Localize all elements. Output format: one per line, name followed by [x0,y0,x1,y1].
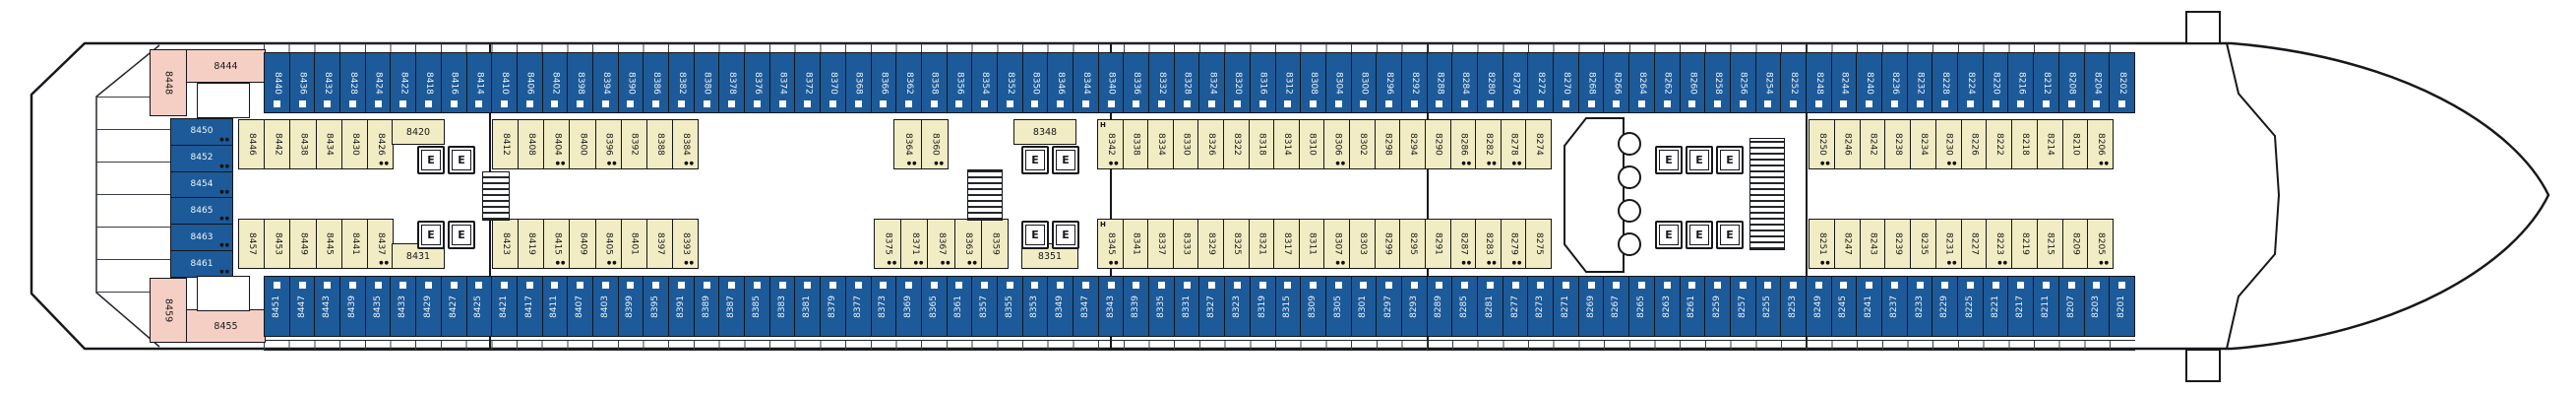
cabin-8308[interactable]: 8308 [1300,52,1326,113]
stern-cabin-column: 8450●●8452●●8454●●8465●●8463●●8461●● [170,118,233,278]
cabin-8293[interactable]: 8293 [1401,276,1428,337]
cabin-8216[interactable]: 8216 [2007,52,2034,113]
cabin-suite-aft-top-vertical[interactable]: 8448 [150,49,187,116]
cabin-8385[interactable]: 8385 [744,276,770,337]
inner-upper-bow-block: 8250●●82468242823882348230●●822682228218… [1809,119,2114,169]
cabin-8234[interactable]: 8234 [1910,119,1936,169]
elevator-icon: E [1686,221,1713,249]
cabin-8298[interactable]: 8298 [1375,119,1401,169]
cabin-8425[interactable]: 8425 [466,276,493,337]
cabin-8247[interactable]: 8247 [1834,219,1861,269]
cabin-8359[interactable]: 8359 [981,219,1009,269]
cabin-8339[interactable]: 8339 [1123,276,1149,337]
cabin-8268[interactable]: 8268 [1578,52,1605,113]
inner-lower-bow-block: 8251●●82478243823982358231●●82278223●●82… [1809,219,2114,269]
cabin-8291[interactable]: 8291 [1425,219,1451,269]
cabin-8202[interactable]: 8202 [2109,52,2135,113]
elevator-icon: E [1052,221,1079,249]
cabin-8227[interactable]: 8227 [1961,219,1988,269]
berth-dots-icon: ●● [1461,261,1472,266]
cabin-8386[interactable]: 8386 [643,52,669,113]
cabin-8220[interactable]: 8220 [1983,52,2009,113]
cabin-8278[interactable]: 8278●● [1501,119,1527,169]
cabin-8218[interactable]: 8218 [2011,119,2038,169]
cabin-8376[interactable]: 8376 [744,52,770,113]
cabin-8319[interactable]: 8319 [1250,276,1276,337]
cabin-8304[interactable]: 8304 [1325,52,1352,113]
cabin-8324[interactable]: 8324 [1198,52,1225,113]
cabin-8296[interactable]: 8296 [1376,52,1402,113]
cabin-8397[interactable]: 8397 [646,219,673,269]
cabin-8204[interactable]: 8204 [2084,52,2111,113]
cabin-8345[interactable]: 8345●●H [1097,219,1124,269]
berth-dots-icon: ●● [2099,261,2110,266]
cabin-8398[interactable]: 8398 [567,52,593,113]
cabin-8365[interactable]: 8365 [921,276,948,337]
cabin-suite-aft-top-wide[interactable]: 8444 [186,49,266,83]
cabin-8250[interactable]: 8250●● [1809,119,1835,169]
cabin-8253[interactable]: 8253 [1780,276,1807,337]
cabin-8294[interactable]: 8294 [1399,119,1426,169]
cabin-8338[interactable]: 8338 [1123,119,1149,169]
cabin-8287[interactable]: 8287●● [1450,219,1477,269]
cabin-8233[interactable]: 8233 [1907,276,1933,337]
berth-dots-icon: ●● [1487,261,1498,266]
cabin-8344[interactable]: 8344 [1073,52,1099,113]
cabin-8357[interactable]: 8357 [971,276,998,337]
cabin-8274[interactable]: 8274 [1525,119,1552,169]
cabin-8311[interactable]: 8311 [1299,219,1325,269]
berth-dots-icon: ●● [1335,162,1346,166]
cabin-8303[interactable]: 8303 [1349,219,1376,269]
cabin-8461[interactable]: 8461●● [170,250,233,278]
cabin-8314[interactable]: 8314 [1273,119,1300,169]
cabin-8396[interactable]: 8396●● [595,119,622,169]
cabin-8329[interactable]: 8329 [1197,219,1224,269]
cabin-8393[interactable]: 8393●● [672,219,699,269]
berth-dots-icon: ●● [379,162,390,166]
cabin-8419[interactable]: 8419 [518,219,544,269]
cabin-8355[interactable]: 8355 [997,276,1023,337]
berth-dots-icon: ●● [1512,261,1523,266]
cabin-8246[interactable]: 8246 [1834,119,1861,169]
cabin-8421[interactable]: 8421 [491,276,518,337]
cabin-8299[interactable]: 8299 [1375,219,1401,269]
cabin-8368[interactable]: 8368 [845,52,872,113]
cabin-8380[interactable]: 8380 [694,52,720,113]
cabin-8378[interactable]: 8378 [718,52,745,113]
inner-lower-mid-block: 8375●●8371●●8367●●8363●●8359 [874,219,1009,269]
elevator-icon: E [417,146,445,174]
cabin-8254[interactable]: 8254 [1755,52,1782,113]
berth-dots-icon: ●● [684,261,695,266]
cabin-8350[interactable]: 8350 [1022,52,1049,113]
cabin-8439[interactable]: 8439 [339,276,366,337]
berth-dots-icon: ●● [219,190,230,195]
cabin-8275[interactable]: 8275 [1525,219,1552,269]
cabin-8240[interactable]: 8240 [1856,52,1882,113]
cabin-8337[interactable]: 8337 [1147,219,1174,269]
cabin-8257[interactable]: 8257 [1730,276,1756,337]
cabin-8248[interactable]: 8248 [1806,52,1832,113]
cabin-8276[interactable]: 8276 [1503,52,1529,113]
cabin-8416[interactable]: 8416 [441,52,467,113]
cabin-8333[interactable]: 8333 [1173,219,1199,269]
cabin-8211[interactable]: 8211 [2033,276,2059,337]
berth-dots-icon: ●● [2099,162,2110,166]
cabin-8362[interactable]: 8362 [895,52,922,113]
cabin-8292[interactable]: 8292 [1401,52,1428,113]
cabin-8441[interactable]: 8441 [341,219,368,269]
cabin-8437[interactable]: 8437●● [367,219,394,269]
cabin-8256[interactable]: 8256 [1730,52,1756,113]
cabin-8320[interactable]: 8320 [1224,52,1251,113]
elevator-icon: E [1021,221,1049,249]
berth-dots-icon: ●● [1820,162,1831,166]
cabin-8228[interactable]: 8228 [1932,52,1958,113]
cabin-8364[interactable]: 8364●● [893,119,922,169]
cabin-8389[interactable]: 8389 [694,276,720,337]
cabin-8307[interactable]: 8307●● [1323,219,1350,269]
cabin-8326[interactable]: 8326 [1197,119,1224,169]
cabin-8354[interactable]: 8354 [971,52,998,113]
inner-upper-mid-pair: 8364●●8360●● [893,119,949,169]
cabin-8312[interactable]: 8312 [1275,52,1302,113]
cabin-8452[interactable]: 8452●● [170,145,233,172]
cabin-8426[interactable]: 8426●● [367,119,394,169]
cabin-8400[interactable]: 8400 [569,119,595,169]
cabin-8317[interactable]: 8317 [1273,219,1300,269]
cabin-8325[interactable]: 8325 [1223,219,1250,269]
berth-dots-icon: ●● [379,261,390,266]
cabin-8206[interactable]: 8206●● [2087,119,2114,169]
cabin-8395[interactable]: 8395 [643,276,669,337]
cabin-8300[interactable]: 8300 [1351,52,1378,113]
cabin-8322[interactable]: 8322 [1223,119,1250,169]
cabin-8423[interactable]: 8423 [492,219,519,269]
cabin-8391[interactable]: 8391 [668,276,695,337]
cabin-8249[interactable]: 8249 [1806,276,1832,337]
stairs-icon [967,169,1003,221]
cabin-8374[interactable]: 8374 [769,52,796,113]
cabin-8285[interactable]: 8285 [1451,276,1478,337]
cabin-8277[interactable]: 8277 [1503,276,1529,337]
berth-dots-icon: ●● [556,261,567,266]
bow-mooring-tab-bottom [2186,350,2220,381]
cabin-8457[interactable]: 8457 [238,219,265,269]
elevator-icon: E [1052,146,1079,174]
cabin-8221[interactable]: 8221 [1983,276,2009,337]
cabin-8427[interactable]: 8427 [441,276,467,337]
cabin-8465[interactable]: 8465●● [170,197,233,225]
cabin-8224[interactable]: 8224 [1957,52,1984,113]
cabin-8346[interactable]: 8346 [1047,52,1073,113]
berth-dots-icon: ●● [1487,162,1498,166]
cabin-8279[interactable]: 8279●● [1501,219,1527,269]
cabin-8323[interactable]: 8323 [1224,276,1251,337]
cabin-8330[interactable]: 8330 [1173,119,1199,169]
cabin-8282[interactable]: 8282●● [1475,119,1502,169]
elevator-bank-forward-lower: E E E [1655,221,1744,249]
cabin-8225[interactable]: 8225 [1957,276,1984,337]
cabin-8205[interactable]: 8205●● [2087,219,2114,269]
cabin-8367[interactable]: 8367●● [927,219,954,269]
cabin-8270[interactable]: 8270 [1553,52,1579,113]
cabin-8334[interactable]: 8334 [1147,119,1174,169]
cabin-8264[interactable]: 8264 [1628,52,1655,113]
cabin-8263[interactable]: 8263 [1654,276,1681,337]
accessible-icon: H [1100,222,1106,229]
cabin-8381[interactable]: 8381 [794,276,821,337]
cabin-8401[interactable]: 8401 [621,219,647,269]
cabin-8352[interactable]: 8352 [997,52,1023,113]
elevator-icon: E [1655,221,1683,249]
cabin-8280[interactable]: 8280 [1477,52,1503,113]
cabin-8388[interactable]: 8388 [646,119,673,169]
berth-dots-icon: ●● [887,261,897,266]
berth-dots-icon: ●● [607,162,618,166]
cabin-8283[interactable]: 8283●● [1475,219,1502,269]
cabin-8442[interactable]: 8442 [264,119,290,169]
cabin-8399[interactable]: 8399 [618,276,644,337]
berth-dots-icon: ●● [219,270,230,275]
cabin-8440[interactable]: 8440 [264,52,290,113]
cabin-8321[interactable]: 8321 [1249,219,1275,269]
cabin-8251[interactable]: 8251●● [1809,219,1835,269]
cabin-8305[interactable]: 8305 [1325,276,1352,337]
cabin-8301[interactable]: 8301 [1351,276,1378,337]
cabin-8245[interactable]: 8245 [1831,276,1858,337]
berth-dots-icon: ●● [1461,162,1472,166]
elevator-icon: E [448,146,475,174]
cabin-8335[interactable]: 8335 [1148,276,1175,337]
cabin-8447[interactable]: 8447 [289,276,316,337]
cabin-8215[interactable]: 8215 [2037,219,2063,269]
cabin-8429[interactable]: 8429 [415,276,442,337]
cabin-8377[interactable]: 8377 [845,276,872,337]
cabin-8288[interactable]: 8288 [1427,52,1453,113]
cabin-8349[interactable]: 8349 [1047,276,1073,337]
cabin-8295[interactable]: 8295 [1399,219,1426,269]
cabin-8237[interactable]: 8237 [1881,276,1908,337]
cabin-8358[interactable]: 8358 [921,52,948,113]
cabin-8450[interactable]: 8450●● [170,118,233,146]
cabin-8343[interactable]: 8343 [1098,276,1125,337]
cabin-8424[interactable]: 8424 [365,52,392,113]
cabin-8212[interactable]: 8212 [2033,52,2059,113]
cabin-8390[interactable]: 8390 [618,52,644,113]
service-room-aft-top [197,83,250,118]
cabin-8222[interactable]: 8222 [1986,119,2012,169]
cabin-8332[interactable]: 8332 [1148,52,1175,113]
cabin-8433[interactable]: 8433 [390,276,416,337]
cabin-8411[interactable]: 8411 [542,276,569,337]
cabin-8261[interactable]: 8261 [1680,276,1706,337]
cabin-8201[interactable]: 8201 [2109,276,2135,337]
cabin-8405[interactable]: 8405●● [595,219,622,269]
elevator-bank-aft-lower: E E [417,221,475,249]
cabin-8207[interactable]: 8207 [2058,276,2085,337]
cabin-8410[interactable]: 8410 [491,52,518,113]
cabin-8375[interactable]: 8375●● [874,219,901,269]
cabin-8417[interactable]: 8417 [517,276,543,337]
cabin-8371[interactable]: 8371●● [900,219,928,269]
cabin-8403[interactable]: 8403 [592,276,619,337]
cabin-8306[interactable]: 8306●● [1323,119,1350,169]
cabin-8392[interactable]: 8392 [621,119,647,169]
cabin-8230[interactable]: 8230●● [1935,119,1962,169]
cabin-8271[interactable]: 8271 [1553,276,1579,337]
cabin-8244[interactable]: 8244 [1831,52,1858,113]
cabin-8415[interactable]: 8415●● [543,219,570,269]
cabin-8430[interactable]: 8430 [341,119,368,169]
berth-dots-icon: ●● [1947,261,1958,266]
cabin-8286[interactable]: 8286●● [1450,119,1477,169]
cabin-8445[interactable]: 8445 [316,219,342,269]
deck-plan: 8448 8444 8459 8455 8450●●8452●●8454●●84… [0,0,2576,394]
berth-dots-icon: ●● [607,261,618,266]
cabin-8432[interactable]: 8432 [314,52,340,113]
cabin-8210[interactable]: 8210 [2062,119,2089,169]
cabin-8223[interactable]: 8223●● [1986,219,2012,269]
cabin-8297[interactable]: 8297 [1376,276,1402,337]
cabin-8449[interactable]: 8449 [289,219,316,269]
cabin-8406[interactable]: 8406 [517,52,543,113]
cabin-8255[interactable]: 8255 [1755,276,1782,337]
cabin-8373[interactable]: 8373 [871,276,897,337]
elevator-icon: E [417,221,445,249]
cabin-8384[interactable]: 8384●● [672,119,699,169]
cabin-8408[interactable]: 8408 [518,119,544,169]
cabin-8232[interactable]: 8232 [1907,52,1933,113]
cabin-8209[interactable]: 8209 [2062,219,2089,269]
cabin-8353[interactable]: 8353 [1022,276,1049,337]
berth-dots-icon: ●● [219,243,230,248]
cabin-8434[interactable]: 8434 [316,119,342,169]
berth-dots-icon: ●● [1947,162,1958,166]
cabin-8229[interactable]: 8229 [1932,276,1958,337]
cabin-8372[interactable]: 8372 [794,52,821,113]
elevator-bank-forward-upper: E E E [1655,146,1744,174]
cabin-8387[interactable]: 8387 [718,276,745,337]
cabin-suite-aft-bottom-wide[interactable]: 8455 [186,309,266,343]
cabin-8336[interactable]: 8336 [1123,52,1149,113]
cabin-8370[interactable]: 8370 [820,52,846,113]
berth-dots-icon: ●● [556,162,567,166]
cabin-8402[interactable]: 8402 [542,52,569,113]
cabin-8238[interactable]: 8238 [1884,119,1911,169]
cabin-8394[interactable]: 8394 [592,52,619,113]
cabin-8366[interactable]: 8366 [871,52,897,113]
cabin-8269[interactable]: 8269 [1578,276,1605,337]
cabin-8262[interactable]: 8262 [1654,52,1681,113]
cabin-8436[interactable]: 8436 [289,52,316,113]
cabin-8379[interactable]: 8379 [820,276,846,337]
cabin-8418[interactable]: 8418 [415,52,442,113]
cabin-8203[interactable]: 8203 [2084,276,2111,337]
cabin-8412[interactable]: 8412 [492,119,519,169]
cabin-8226[interactable]: 8226 [1961,119,1988,169]
cabin-8236[interactable]: 8236 [1881,52,1908,113]
cabin-8266[interactable]: 8266 [1603,52,1629,113]
cabin-8327[interactable]: 8327 [1198,276,1225,337]
cabin-8243[interactable]: 8243 [1860,219,1886,269]
cabin-8382[interactable]: 8382 [668,52,695,113]
cabin-8360[interactable]: 8360●● [921,119,950,169]
cabin-8407[interactable]: 8407 [567,276,593,337]
cabin-8331[interactable]: 8331 [1174,276,1200,337]
cabin-8446[interactable]: 8446 [238,119,265,169]
cabin-8309[interactable]: 8309 [1300,276,1326,337]
cabin-8208[interactable]: 8208 [2058,52,2085,113]
cabin-8463[interactable]: 8463●● [170,224,233,251]
cabin-8284[interactable]: 8284 [1451,52,1478,113]
cabin-8453[interactable]: 8453 [264,219,290,269]
cabin-8409[interactable]: 8409 [569,219,595,269]
cabin-8239[interactable]: 8239 [1884,219,1911,269]
cabin-8316[interactable]: 8316 [1250,52,1276,113]
cabin-inside-wide[interactable]: 8420 [392,119,445,145]
cabin-8252[interactable]: 8252 [1780,52,1807,113]
cabin-8217[interactable]: 8217 [2007,276,2034,337]
cabin-8318[interactable]: 8318 [1249,119,1275,169]
cabin-8310[interactable]: 8310 [1299,119,1325,169]
cabin-8281[interactable]: 8281 [1477,276,1503,337]
cabin-inside-wide[interactable]: 8348 [1013,119,1076,145]
cabin-8289[interactable]: 8289 [1427,276,1453,337]
cabin-8361[interactable]: 8361 [947,276,973,337]
cabin-8290[interactable]: 8290 [1425,119,1451,169]
cabin-8214[interactable]: 8214 [2037,119,2063,169]
cabin-8341[interactable]: 8341 [1123,219,1149,269]
cabin-8242[interactable]: 8242 [1860,119,1886,169]
cabin-8273[interactable]: 8273 [1527,276,1554,337]
cabin-8451[interactable]: 8451 [264,276,290,337]
cabin-8363[interactable]: 8363●● [954,219,982,269]
cabin-8340[interactable]: 8340 [1098,52,1125,113]
cabin-8258[interactable]: 8258 [1704,52,1731,113]
cabin-8414[interactable]: 8414 [466,52,493,113]
cabin-8260[interactable]: 8260 [1680,52,1706,113]
cabin-8404[interactable]: 8404●● [543,119,570,169]
cabin-8369[interactable]: 8369 [895,276,922,337]
cabin-8302[interactable]: 8302 [1349,119,1376,169]
cabin-8435[interactable]: 8435 [365,276,392,337]
cabin-8219[interactable]: 8219 [2011,219,2038,269]
cabin-8422[interactable]: 8422 [390,52,416,113]
cabin-8342[interactable]: 8342●●H [1097,119,1124,169]
cabin-8267[interactable]: 8267 [1603,276,1629,337]
cabin-8347[interactable]: 8347 [1073,276,1099,337]
cabin-suite-aft-bottom-vertical[interactable]: 8459 [150,278,187,343]
cabin-8265[interactable]: 8265 [1628,276,1655,337]
cabin-8235[interactable]: 8235 [1910,219,1936,269]
cabin-8272[interactable]: 8272 [1527,52,1554,113]
cabin-8428[interactable]: 8428 [339,52,366,113]
cabin-8328[interactable]: 8328 [1174,52,1200,113]
cabin-8315[interactable]: 8315 [1275,276,1302,337]
cabin-8259[interactable]: 8259 [1704,276,1731,337]
bottom-outer-cabin-row: 8451844784438439843584338429842784258421… [264,276,2135,337]
cabin-8241[interactable]: 8241 [1856,276,1882,337]
cabin-8454[interactable]: 8454●● [170,171,233,199]
cabin-8438[interactable]: 8438 [289,119,316,169]
cabin-8383[interactable]: 8383 [769,276,796,337]
berth-dots-icon: ●● [1109,162,1120,166]
cabin-8356[interactable]: 8356 [947,52,973,113]
cabin-8443[interactable]: 8443 [314,276,340,337]
cabin-8231[interactable]: 8231●● [1935,219,1962,269]
